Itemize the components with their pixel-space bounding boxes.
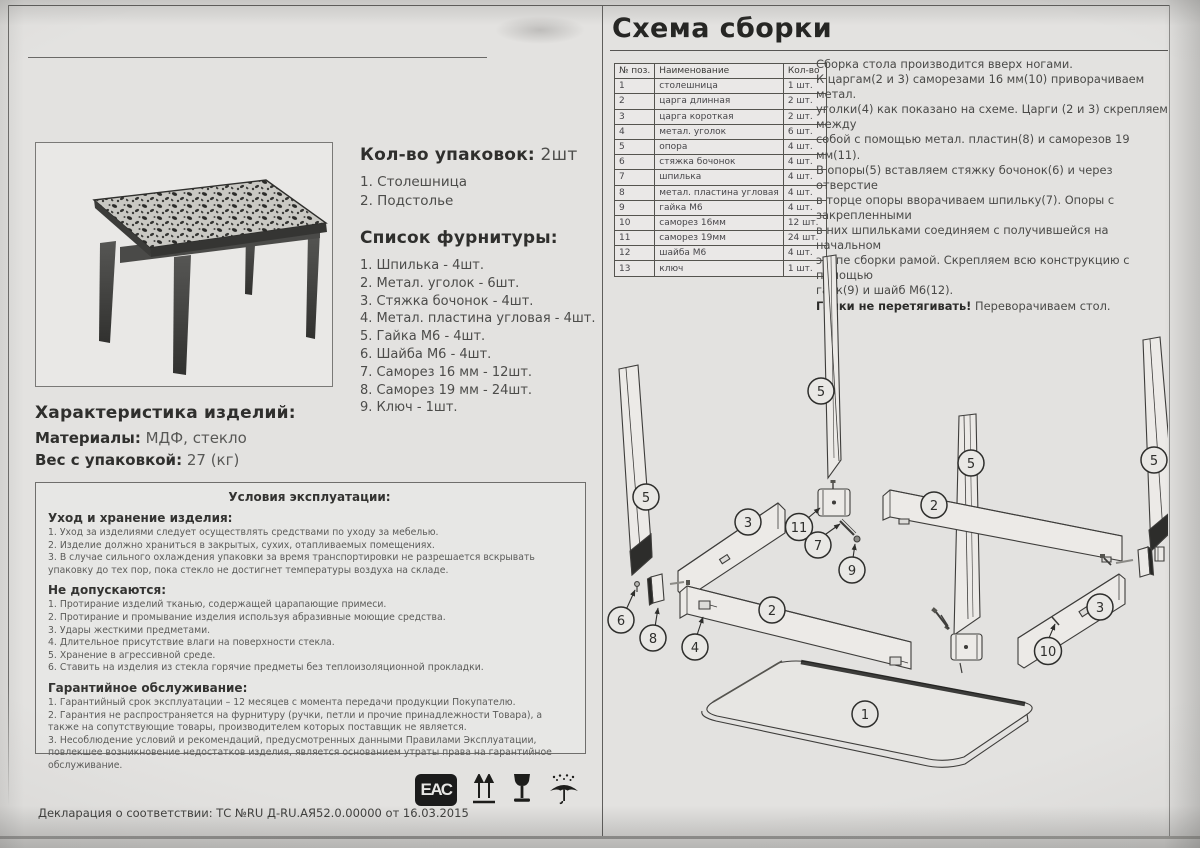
table-cell: опора xyxy=(655,139,784,154)
table-cell: гайка М6 xyxy=(655,200,784,215)
declaration-line: Декларация о соответствии: ТС №RU Д-RU.А… xyxy=(38,806,469,820)
materials-label: Материалы: xyxy=(35,429,141,447)
table-cell: 7 xyxy=(615,170,655,185)
table-cell: 8 xyxy=(615,185,655,200)
table-left-leg xyxy=(99,241,116,343)
package-item: 1. Столешница xyxy=(360,173,577,192)
hardware-item: 6. Шайба М6 - 4шт. xyxy=(360,346,595,364)
table-cell: стяжка бочонок xyxy=(655,155,784,170)
rail-long-lower xyxy=(680,586,911,669)
hardware-list: 1. Шпилька - 4шт.2. Метал. уголок - 6шт.… xyxy=(360,257,595,417)
table-right-leg xyxy=(306,231,320,339)
conditions-title: Условия эксплуатации: xyxy=(48,490,571,504)
usage-conditions-box: Условия эксплуатации: Уход и хранение из… xyxy=(35,482,586,754)
packages-value: 2шт xyxy=(535,145,577,165)
page-title: Схема сборки xyxy=(612,13,832,44)
warranty-list: 1. Гарантийный срок эксплуатации – 12 ме… xyxy=(48,697,571,773)
certification-marks: ЕАС xyxy=(415,774,581,806)
callout-4: 4 xyxy=(691,641,699,656)
hardware-item: 9. Ключ - 1шт. xyxy=(360,399,595,417)
table-row: 4метал. уголок6 шт. xyxy=(615,124,827,139)
packages-label: Кол-во упаковок: xyxy=(360,145,535,165)
callout-3: 3 xyxy=(744,516,752,531)
callout-5: 5 xyxy=(642,491,650,506)
materials-value: МДФ, стекло xyxy=(141,429,247,447)
weight-row: Вес с упаковкой: 27 (кг) xyxy=(35,451,296,471)
rail-long-upper xyxy=(883,490,1122,562)
callout-5: 5 xyxy=(1150,454,1158,469)
table-row: 1столешница1 шт. xyxy=(615,79,827,94)
callout-2: 2 xyxy=(930,499,938,514)
nut-icon xyxy=(854,536,860,542)
table-row: 2царга длинная2 шт. xyxy=(615,94,827,109)
warranty-item: 1. Гарантийный срок эксплуатации – 12 ме… xyxy=(48,697,571,710)
table-cell: столешница xyxy=(655,79,784,94)
scanned-assembly-sheet: Кол-во упаковок: 2шт 1. Столешница2. Под… xyxy=(0,0,1200,848)
care-item: 2. Изделие должно храниться в закрытых, … xyxy=(48,540,571,553)
materials-row: Материалы: МДФ, стекло xyxy=(35,429,296,449)
callout-1: 1 xyxy=(861,708,869,723)
prohibited-item: 2. Протирание и промывание изделия испол… xyxy=(48,612,571,625)
care-heading: Уход и хранение изделия: xyxy=(48,511,571,525)
rail-short-upper xyxy=(678,503,785,599)
barrel-nut-upper xyxy=(818,489,850,516)
hardware-item: 3. Стяжка бочонок - 4шт. xyxy=(360,293,595,311)
hardware-item: 4. Метал. пластина угловая - 4шт. xyxy=(360,310,595,328)
leg-right xyxy=(1143,337,1168,551)
callout-5: 5 xyxy=(967,457,975,472)
care-item: 1. Уход за изделиями следует осуществлят… xyxy=(48,527,571,540)
table-row: 9гайка М64 шт. xyxy=(615,200,827,215)
table-front-leg xyxy=(173,255,191,375)
page-left-border xyxy=(8,5,9,805)
hardware-section: Список фурнитуры: 1. Шпилька - 4шт.2. Ме… xyxy=(360,228,595,417)
callout-2: 2 xyxy=(768,604,776,619)
corner-bracket-icon xyxy=(699,601,710,609)
product-photo-frame xyxy=(35,142,333,387)
table-cell: метал. уголок xyxy=(655,124,784,139)
hardware-item: 1. Шпилька - 4шт. xyxy=(360,257,595,275)
table-cell: 2 xyxy=(615,94,655,109)
leg-left xyxy=(619,365,652,575)
table-row: 8метал. пластина угловая4 шт. xyxy=(615,185,827,200)
col-header-name: Наименование xyxy=(655,64,784,79)
hardware-item: 7. Саморез 16 мм - 12шт. xyxy=(360,364,595,382)
table-row: 6стяжка бочонок4 шт. xyxy=(615,155,827,170)
leg-center-left xyxy=(823,255,841,493)
table-cell: царга короткая xyxy=(655,109,784,124)
hardware-item: 8. Саморез 19 мм - 24шт. xyxy=(360,382,595,400)
table-row: 5опора4 шт. xyxy=(615,139,827,154)
table-cell: 5 xyxy=(615,139,655,154)
assembly-page: Схема сборки № поз. Наименование Кол-во … xyxy=(602,5,1170,838)
callout-11: 11 xyxy=(791,521,808,536)
callout-8: 8 xyxy=(649,632,657,647)
exploded-diagram: 5 5 5 5 3 2 11 7 9 6 8 4 2 10 3 1 xyxy=(602,227,1168,835)
this-way-up-icon xyxy=(471,774,497,804)
callout-10: 10 xyxy=(1040,645,1057,660)
characteristics-section: Характеристика изделий: Материалы: МДФ, … xyxy=(35,403,296,470)
care-list: 1. Уход за изделиями следует осуществлят… xyxy=(48,527,571,577)
callout-7: 7 xyxy=(814,539,822,554)
callout-9: 9 xyxy=(848,564,856,579)
table-row: 3царга короткая2 шт. xyxy=(615,109,827,124)
prohibited-item: 4. Длительное присутствие влаги на повер… xyxy=(48,637,571,650)
table-cell: 4 xyxy=(615,124,655,139)
table-cell: 9 xyxy=(615,200,655,215)
scan-bottom-edge xyxy=(0,836,1200,839)
callout-6: 6 xyxy=(617,614,625,629)
title-underline xyxy=(610,50,1168,51)
prohibited-item: 6. Ставить на изделия из стекла горячие … xyxy=(48,662,571,675)
product-table-illustration xyxy=(36,143,329,383)
warranty-heading: Гарантийное обслуживание: xyxy=(48,681,571,695)
eac-mark-icon: ЕАС xyxy=(415,774,457,806)
callout-3: 3 xyxy=(1096,601,1104,616)
col-header-pos: № поз. xyxy=(615,64,655,79)
packages-heading: Кол-во упаковок: 2шт xyxy=(360,145,577,165)
table-cell: 1 xyxy=(615,79,655,94)
table-row: 7шпилька4 шт. xyxy=(615,170,827,185)
table-cell: царга длинная xyxy=(655,94,784,109)
callout-5: 5 xyxy=(817,385,825,400)
hardware-heading: Список фурнитуры: xyxy=(360,228,595,248)
prohibited-item: 5. Хранение в агрессивной среде. xyxy=(48,650,571,663)
packages-section: Кол-во упаковок: 2шт 1. Столешница2. Под… xyxy=(360,145,577,211)
hardware-item: 5. Гайка М6 - 4шт. xyxy=(360,328,595,346)
package-item: 2. Подстолье xyxy=(360,192,577,211)
table-cell: 6 xyxy=(615,155,655,170)
prohibited-heading: Не допускаются: xyxy=(48,583,571,597)
table-cell: шпилька xyxy=(655,170,784,185)
weight-label: Вес с упаковкой: xyxy=(35,451,182,469)
fragile-glass-icon xyxy=(511,774,533,805)
care-item: 3. В случае сильного охлаждения упаковки… xyxy=(48,552,571,577)
warranty-item: 2. Гарантия не распространяется на фурни… xyxy=(48,710,571,735)
scan-smudge xyxy=(495,16,585,44)
warranty-item: 3. Несоблюдение условий и рекомендаций, … xyxy=(48,735,571,773)
stud-icon xyxy=(840,519,860,542)
packages-list: 1. Столешница2. Подстолье xyxy=(360,173,577,211)
corner-bracket-icon xyxy=(890,657,901,665)
keep-dry-umbrella-icon xyxy=(547,774,581,806)
prohibited-item: 1. Протирание изделий тканью, содержащей… xyxy=(48,599,571,612)
characteristics-heading: Характеристика изделий: xyxy=(35,403,296,423)
left-top-rule xyxy=(28,57,487,58)
prohibited-list: 1. Протирание изделий тканью, содержащей… xyxy=(48,599,571,675)
weight-value: 27 (кг) xyxy=(182,451,239,469)
table-cell: метал. пластина угловая xyxy=(655,185,784,200)
table-header-row: № поз. Наименование Кол-во xyxy=(615,64,827,79)
table-cell: 3 xyxy=(615,109,655,124)
hardware-item: 2. Метал. уголок - 6шт. xyxy=(360,275,595,293)
prohibited-item: 3. Удары жесткими предметами. xyxy=(48,625,571,638)
